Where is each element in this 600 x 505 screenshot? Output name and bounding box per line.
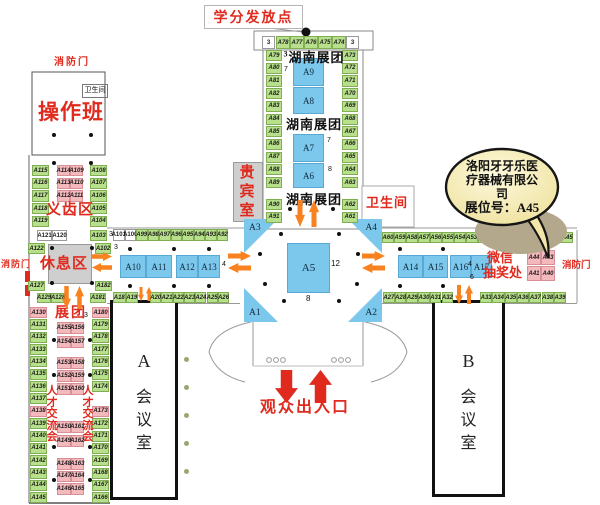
marker-12-a5: 12 xyxy=(331,259,340,268)
booth-A116: A116 xyxy=(32,178,49,189)
booth-A7: A7 xyxy=(293,134,324,162)
booth-A182: A182 xyxy=(95,281,112,291)
booth-A150: A150 xyxy=(57,421,71,433)
exhibition-floor-plan: A 会议室 B 会议室 贵宾室 休息区 学分发放点 消防门 消防门 消防门 卫生… xyxy=(0,0,600,505)
booth-A147: A147 xyxy=(57,471,71,483)
booth-A167: A167 xyxy=(92,480,109,491)
hunan-group-label-1: 3湖南展团 xyxy=(268,47,360,66)
booth-A28: A28 xyxy=(395,292,407,303)
dot-marker-icon xyxy=(331,207,335,211)
restroom-right-label: 卫生间 xyxy=(366,196,408,210)
booth-A164: A164 xyxy=(71,471,85,483)
booth-A83: A83 xyxy=(266,101,282,112)
booth-A5: A5 xyxy=(287,243,330,293)
booth-A169: A169 xyxy=(92,455,109,466)
booth-A63: A63 xyxy=(342,177,358,188)
booth-A37: A37 xyxy=(529,292,541,303)
booth-A26: A26 xyxy=(218,292,229,303)
booth-A58: A58 xyxy=(406,232,418,243)
booth-A121: A121 xyxy=(37,230,52,241)
booth-A31: A31 xyxy=(430,292,442,303)
booth-A158: A158 xyxy=(71,357,85,369)
booth-A94: A94 xyxy=(194,229,206,241)
dot-marker-icon xyxy=(50,246,54,250)
marker-8-a5: 8 xyxy=(306,294,310,303)
dot-marker-icon xyxy=(89,133,93,137)
booth-A180: A180 xyxy=(92,307,109,318)
fire-door-top-label: 消防门 xyxy=(54,58,90,69)
dot-marker-icon xyxy=(337,232,341,236)
marker-7-a7: 7 xyxy=(327,137,331,144)
booth-A48: A48 xyxy=(525,232,537,243)
booth-A135: A135 xyxy=(30,369,47,380)
marker-4-east: 4 xyxy=(468,261,472,268)
booth-A174: A174 xyxy=(92,381,109,392)
booth-A108: A108 xyxy=(90,165,107,176)
dot-marker-icon xyxy=(441,247,445,251)
vip-room-label: 贵宾室 xyxy=(237,164,257,220)
booth-A181: A181 xyxy=(90,293,106,303)
booth-A22: A22 xyxy=(173,292,184,303)
dot-marker-icon xyxy=(52,161,56,165)
booth-A151: A151 xyxy=(57,383,71,395)
booth-A132: A132 xyxy=(30,332,47,343)
meeting-room-b-label: 会议室 xyxy=(460,386,477,456)
booth-A70: A70 xyxy=(342,88,358,99)
booth-A23: A23 xyxy=(184,292,195,303)
booth-A144: A144 xyxy=(30,480,47,491)
booth-A41: A41 xyxy=(527,266,541,281)
dot-marker-icon xyxy=(88,338,92,342)
meeting-room-b: B 会议室 xyxy=(432,300,505,497)
booth-A32: A32 xyxy=(442,292,454,303)
dot-marker-icon xyxy=(207,247,211,251)
dot-marker-icon xyxy=(258,252,262,256)
fire-door-right-label: 消防门 xyxy=(562,261,591,271)
booth-A8: A8 xyxy=(293,87,324,114)
booth-A178: A178 xyxy=(92,332,109,343)
meeting-room-b-letter: B xyxy=(462,351,474,372)
dot-marker-icon xyxy=(52,445,56,449)
booth-A168: A168 xyxy=(92,468,109,479)
booth-A175: A175 xyxy=(92,369,109,380)
booth-A53: A53 xyxy=(466,232,478,243)
arrow-left-west-icon xyxy=(228,263,251,273)
booth-A113: A113 xyxy=(57,178,70,189)
booth-A137: A137 xyxy=(30,393,47,404)
marker-3-zhantuan: 3 xyxy=(84,312,88,319)
booth-A152: A152 xyxy=(57,370,71,382)
arrow-down-a19-icon xyxy=(138,287,144,301)
booth-A4: A4 xyxy=(348,219,382,253)
dot-marker-icon xyxy=(90,246,94,250)
marker-8-a6: 8 xyxy=(328,166,332,173)
green-dot-icon xyxy=(184,357,189,362)
booth-A35: A35 xyxy=(505,292,517,303)
booth-A153: A153 xyxy=(57,357,71,369)
booth-A14: A14 xyxy=(398,255,423,278)
booth-A6: A6 xyxy=(293,163,324,188)
dot-marker-icon xyxy=(88,373,92,377)
bubble-booth-number: 展位号：A45 xyxy=(446,201,558,215)
booth-A177: A177 xyxy=(92,344,109,355)
booth-A46: A46 xyxy=(549,232,561,243)
booth-A157: A157 xyxy=(71,336,85,348)
marker-3-a103: 3 xyxy=(109,231,113,238)
dot-marker-icon xyxy=(89,161,93,165)
booth-A128: A128 xyxy=(51,293,65,303)
booth-A130: A130 xyxy=(30,307,47,318)
booth-A131: A131 xyxy=(30,319,47,330)
booth-A18: A18 xyxy=(113,292,126,303)
booth-A120: A120 xyxy=(52,230,67,241)
booth-A52: A52 xyxy=(478,232,490,243)
booth-A115: A115 xyxy=(32,165,49,176)
booth-A69: A69 xyxy=(342,101,358,112)
booth-A45: A45 xyxy=(561,232,573,243)
meeting-room-a-label: 会议室 xyxy=(136,386,153,456)
booth-A36: A36 xyxy=(517,292,529,303)
dot-marker-icon xyxy=(279,232,283,236)
booth-A99: A99 xyxy=(136,229,148,241)
bubble-line2: 疗器械有限公 xyxy=(446,173,558,187)
booth-A60: A60 xyxy=(382,232,394,243)
booth-A154: A154 xyxy=(57,336,71,348)
booth-A134: A134 xyxy=(30,356,47,367)
booth-A173: A173 xyxy=(92,406,109,417)
booth-A3: A3 xyxy=(244,219,278,253)
booth-A86: A86 xyxy=(266,139,282,150)
booth-A109: A109 xyxy=(70,165,83,176)
wechat-lottery-line1: 微信 xyxy=(487,251,513,265)
booth-A142: A142 xyxy=(30,455,47,466)
meeting-room-a: A 会议室 xyxy=(110,300,178,500)
booth-A136: A136 xyxy=(30,381,47,392)
operation-class-label: 操作班 xyxy=(38,102,104,124)
dot-marker-icon xyxy=(52,338,56,342)
booth-A166: A166 xyxy=(92,492,109,503)
booth-A47: A47 xyxy=(537,232,549,243)
booth-A95: A95 xyxy=(182,229,194,241)
marker-3-a102: 3 xyxy=(114,244,118,251)
booth-A38: A38 xyxy=(542,292,554,303)
green-dot-icon xyxy=(184,385,189,390)
booth-A156: A156 xyxy=(71,322,85,334)
dot-marker-icon xyxy=(128,247,132,251)
booth-A106: A106 xyxy=(90,190,107,201)
green-dot-icon xyxy=(184,413,189,418)
booth-A122: A122 xyxy=(28,243,45,254)
booth-A51: A51 xyxy=(490,232,502,243)
booth-A61: A61 xyxy=(342,212,358,223)
booth-A27: A27 xyxy=(383,292,395,303)
credit-point-label: 学分发放点 xyxy=(214,7,294,27)
dot-marker-icon xyxy=(88,445,92,449)
booth-A92: A92 xyxy=(217,229,229,241)
booth-A11: A11 xyxy=(146,255,172,278)
exhibition-group-label: 展团 xyxy=(55,305,87,320)
arrow-left-east-icon xyxy=(362,263,385,273)
booth-A159: A159 xyxy=(71,370,85,382)
booth-A71: A71 xyxy=(342,75,358,86)
booth-A15: A15 xyxy=(423,255,448,278)
booth-A64: A64 xyxy=(342,164,358,175)
wechat-lottery-line2: 抽奖处 xyxy=(483,266,522,280)
booth-A112: A112 xyxy=(57,190,70,201)
booth-A25: A25 xyxy=(207,292,218,303)
booth-A172: A172 xyxy=(92,418,109,429)
booth-A30: A30 xyxy=(418,292,430,303)
denture-area-label: 义齿区 xyxy=(46,202,94,218)
booth-A43: A43 xyxy=(541,250,555,265)
visitor-entrance-label: 观众出入口 xyxy=(260,400,350,417)
booth-A88: A88 xyxy=(266,164,282,175)
booth-A33: A33 xyxy=(480,292,492,303)
booth-A55: A55 xyxy=(442,232,454,243)
meeting-room-a-letter: A xyxy=(138,351,151,372)
booth-A87: A87 xyxy=(266,152,282,163)
booth-A34: A34 xyxy=(492,292,504,303)
dot-marker-icon xyxy=(52,478,56,482)
booth-A139: A139 xyxy=(30,418,47,429)
dot-marker-icon xyxy=(337,299,341,303)
arrow-right-west-icon xyxy=(228,251,251,261)
booth-A148: A148 xyxy=(57,458,71,470)
booth-A56: A56 xyxy=(430,232,442,243)
booth-A2: A2 xyxy=(348,288,382,322)
hunan-group-label-2: 湖南展团 xyxy=(268,114,360,133)
booth-A163: A163 xyxy=(71,458,85,470)
booth-A127: A127 xyxy=(28,281,45,291)
dot-marker-icon xyxy=(441,284,445,288)
booth-A107: A107 xyxy=(90,178,107,189)
booth-A49: A49 xyxy=(513,232,525,243)
marker-4-west: 4 xyxy=(222,261,226,268)
booth-A176: A176 xyxy=(92,356,109,367)
dot-marker-icon xyxy=(355,282,359,286)
booth-A57: A57 xyxy=(418,232,430,243)
booth-A12: A12 xyxy=(176,255,198,278)
bubble-line3: 司 xyxy=(446,187,558,201)
booth-A29: A29 xyxy=(406,292,418,303)
booth-A93: A93 xyxy=(205,229,217,241)
rest-area-label: 休息区 xyxy=(40,256,96,272)
booth-A145: A145 xyxy=(30,492,47,503)
dot-marker-icon xyxy=(263,282,267,286)
credit-point-box: 学分发放点 xyxy=(204,5,303,29)
booth-A19: A19 xyxy=(126,292,139,303)
booth-A97: A97 xyxy=(159,229,171,241)
dot-marker-icon xyxy=(282,299,286,303)
booth-A59: A59 xyxy=(394,232,406,243)
booth-A96: A96 xyxy=(171,229,183,241)
booth-A117: A117 xyxy=(32,190,49,201)
booth-A141: A141 xyxy=(30,443,47,454)
restroom-small-label: 卫生间 xyxy=(82,84,108,98)
dot-marker-icon xyxy=(52,373,56,377)
dot-marker-icon xyxy=(398,247,402,251)
booth-A149: A149 xyxy=(57,435,71,447)
booth-A54: A54 xyxy=(454,232,466,243)
booth-A129: A129 xyxy=(37,293,51,303)
dot-marker-icon xyxy=(398,284,402,288)
booth-A138: A138 xyxy=(30,406,47,417)
job-fair-label-left: 人才交流会 xyxy=(46,386,58,444)
booth-A40: A40 xyxy=(541,266,555,281)
booth-A21: A21 xyxy=(161,292,172,303)
booth-A39: A39 xyxy=(554,292,566,303)
booth-A111: A111 xyxy=(70,190,83,201)
dot-marker-icon xyxy=(88,478,92,482)
booth-A103: A103 xyxy=(90,230,107,241)
green-dot-icon xyxy=(184,441,189,446)
booth-A65: A65 xyxy=(342,152,358,163)
marker-7-a9: 7 xyxy=(284,66,288,73)
booth-A44: A44 xyxy=(527,250,541,265)
booth-A140: A140 xyxy=(30,431,47,442)
fire-door-left-label: 消防门 xyxy=(1,260,31,269)
dot-marker-icon xyxy=(52,133,56,137)
dot-marker-icon xyxy=(356,252,360,256)
booth-A13: A13 xyxy=(198,255,220,278)
booth-A20: A20 xyxy=(150,292,161,303)
bubble-line1: 洛阳牙牙乐医 xyxy=(446,159,558,173)
dot-marker-icon xyxy=(207,284,211,288)
booth-A110: A110 xyxy=(70,178,83,189)
booth-A91: A91 xyxy=(266,212,282,223)
booth-A81: A81 xyxy=(266,75,282,86)
green-dot-icon xyxy=(184,469,189,474)
job-fair-label-right: 人才交流会 xyxy=(82,386,94,444)
booth-A98: A98 xyxy=(148,229,160,241)
booth-A50: A50 xyxy=(502,232,514,243)
booth-A171: A171 xyxy=(92,431,109,442)
booth-A82: A82 xyxy=(266,88,282,99)
booth-A133: A133 xyxy=(30,344,47,355)
booth-A89: A89 xyxy=(266,177,282,188)
booth-A165: A165 xyxy=(71,483,85,495)
booth-A100: A100 xyxy=(125,229,137,241)
booth-A24: A24 xyxy=(195,292,206,303)
booth-A143: A143 xyxy=(30,468,47,479)
booth-A146: A146 xyxy=(57,483,71,495)
marker-6-east: 6 xyxy=(470,274,474,281)
booth-A155: A155 xyxy=(57,322,71,334)
booth-A1: A1 xyxy=(244,288,278,322)
dot-marker-icon xyxy=(128,284,132,288)
booth-A66: A66 xyxy=(342,139,358,150)
bubble-text: 洛阳牙牙乐医 疗器械有限公 司 展位号：A45 xyxy=(446,159,558,215)
booth-A170: A170 xyxy=(92,443,109,454)
dot-marker-icon xyxy=(172,247,176,251)
dot-marker-icon xyxy=(172,284,176,288)
booth-A179: A179 xyxy=(92,319,109,330)
dot-marker-icon xyxy=(50,281,54,285)
booth-A10: A10 xyxy=(120,255,146,278)
dot-marker-icon xyxy=(288,207,292,211)
dot-marker-icon xyxy=(90,281,94,285)
